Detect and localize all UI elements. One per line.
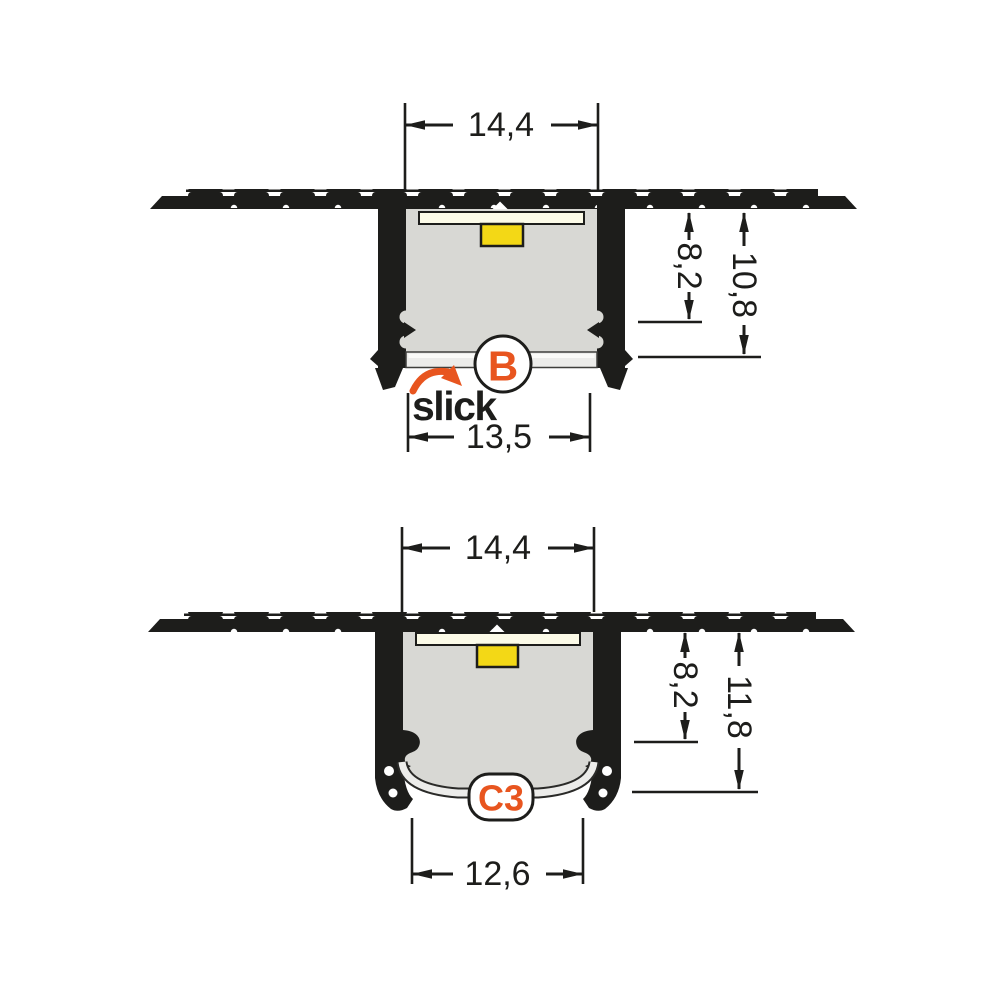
diagram-profile-b: 14,4: [150, 103, 857, 456]
clip-groove: [591, 336, 604, 349]
led-profile-cross-sections: 14,4: [0, 0, 1000, 1000]
dimension-value-recess-depth-b: 8,2: [670, 242, 708, 289]
arrowhead-down: [680, 720, 690, 740]
arrowhead-right: [563, 869, 583, 879]
arrowhead-down: [734, 770, 744, 790]
flange-left-taper: [148, 619, 160, 632]
flange-right-taper: [845, 196, 857, 209]
arrowhead-left: [408, 432, 428, 442]
wall-notch: [602, 766, 612, 776]
dimension-bottom-width-c3: 12,6: [412, 818, 583, 893]
flange-right-taper: [843, 619, 855, 632]
led-strip-pcb: [419, 212, 584, 224]
arrowhead-left: [412, 869, 432, 879]
dimension-value-top-width-c3: 14,4: [465, 529, 531, 567]
arrowhead-left: [402, 543, 422, 553]
left-wall-tip: [375, 368, 403, 390]
arrowhead-down: [739, 335, 749, 355]
arrowhead-up: [739, 212, 749, 232]
clip-groove: [400, 311, 413, 324]
dimension-value-total-depth-c3: 11,8: [720, 675, 758, 739]
clip-groove: [400, 336, 413, 349]
dimension-top-width-b: 14,4: [405, 103, 598, 190]
variant-badge-c3: C3: [469, 774, 533, 820]
flange-serrations: [184, 612, 816, 620]
led-chip: [481, 224, 523, 246]
clip-groove: [591, 311, 604, 324]
flange-serrations: [186, 189, 818, 197]
arrowhead-up: [680, 632, 690, 652]
flange-left-taper: [150, 196, 162, 209]
badge-label-c3: C3: [478, 778, 524, 819]
dimension-value-recess-depth-c3: 8,2: [666, 661, 704, 708]
led-strip-pcb: [416, 633, 580, 645]
dimension-total-depth-c3: 11,8: [632, 632, 758, 792]
arrowhead-up: [734, 632, 744, 652]
dimension-recess-depth-b: 8,2: [638, 212, 708, 322]
dimension-value-bottom-width-c3: 12,6: [464, 855, 530, 893]
right-flare: [625, 350, 633, 366]
right-wall-tip: [600, 368, 628, 390]
arrowhead-up: [684, 212, 694, 232]
wall-notch: [384, 766, 394, 776]
technical-drawing-page: 14,4: [0, 0, 1000, 1000]
arrowhead-right: [578, 120, 598, 130]
arrowhead-right: [570, 432, 590, 442]
arrowhead-down: [684, 300, 694, 320]
led-chip: [477, 645, 518, 667]
left-flare: [370, 350, 378, 366]
dimension-value-total-depth-b: 10,8: [725, 252, 763, 318]
wall-notch: [389, 789, 398, 798]
arrowhead-left: [405, 120, 425, 130]
dimension-value-bottom-width-b: 13,5: [466, 418, 532, 456]
wall-notch: [599, 789, 608, 798]
dimension-recess-depth-c3: 8,2: [634, 632, 704, 742]
arrowhead-right: [574, 543, 594, 553]
diagram-profile-c3: 14,4 C: [148, 527, 855, 893]
dimension-value-top-width-b: 14,4: [468, 106, 534, 144]
dimension-top-width-c3: 14,4: [402, 527, 594, 612]
